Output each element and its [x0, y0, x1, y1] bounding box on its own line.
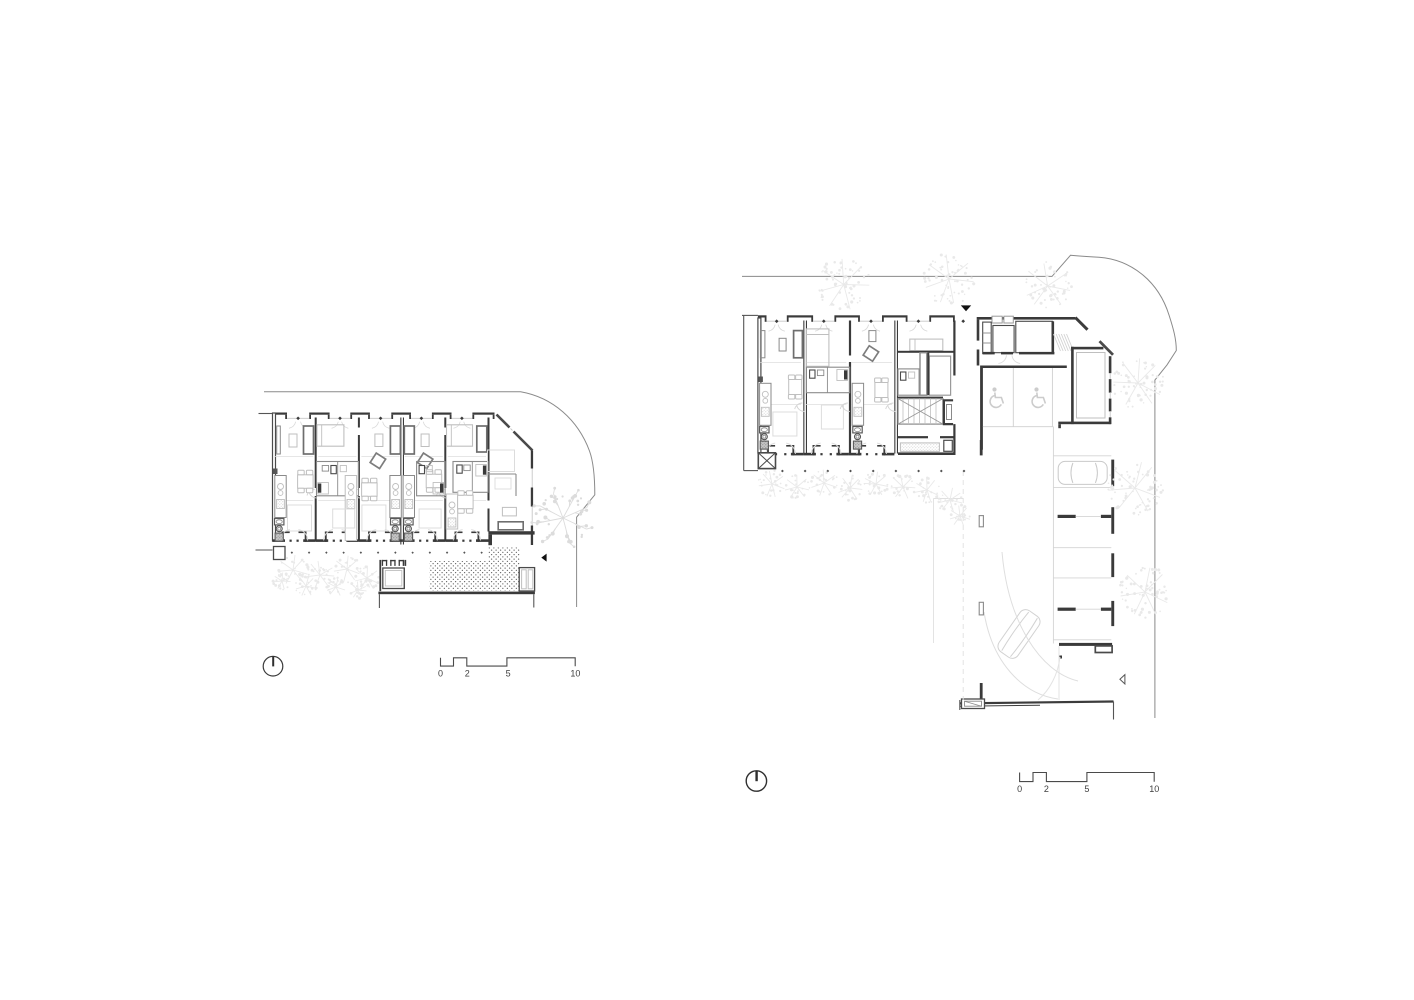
- svg-text:2: 2: [465, 669, 470, 679]
- svg-text:10: 10: [570, 669, 580, 679]
- svg-text:5: 5: [506, 669, 511, 679]
- svg-text:0: 0: [1017, 784, 1022, 794]
- svg-text:10: 10: [1149, 784, 1159, 794]
- svg-text:2: 2: [1044, 784, 1049, 794]
- svg-text:5: 5: [1084, 784, 1089, 794]
- svg-text:0: 0: [438, 669, 443, 679]
